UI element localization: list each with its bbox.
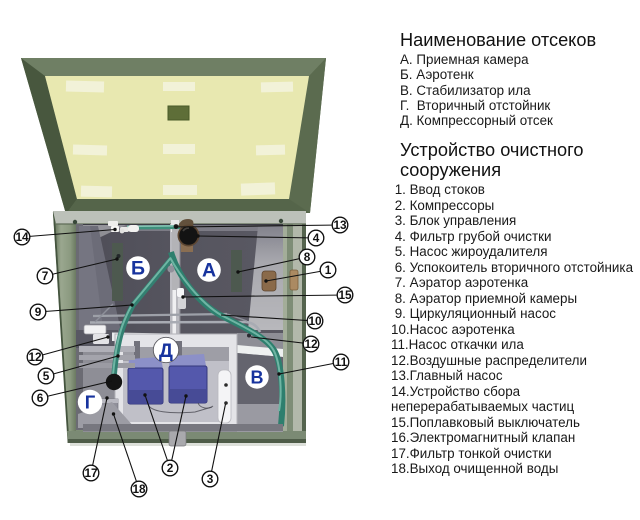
- svg-text:7: 7: [42, 269, 49, 283]
- svg-text:Д: Д: [159, 340, 173, 362]
- svg-text:9: 9: [35, 305, 42, 319]
- svg-text:14: 14: [15, 230, 29, 244]
- svg-text:8: 8: [304, 250, 311, 264]
- svg-text:4: 4: [313, 231, 320, 245]
- svg-text:1: 1: [325, 263, 332, 277]
- svg-text:А: А: [202, 260, 216, 282]
- svg-text:6: 6: [37, 391, 44, 405]
- svg-text:17: 17: [84, 466, 98, 480]
- svg-text:2: 2: [167, 461, 174, 475]
- svg-text:15: 15: [338, 288, 352, 302]
- svg-text:Г: Г: [85, 392, 96, 413]
- svg-text:3: 3: [207, 472, 214, 486]
- svg-text:13: 13: [333, 218, 347, 232]
- svg-text:18: 18: [132, 482, 146, 496]
- svg-text:5: 5: [43, 369, 50, 383]
- svg-text:Б: Б: [131, 258, 145, 280]
- svg-text:12: 12: [28, 350, 42, 364]
- svg-text:10: 10: [308, 314, 322, 328]
- svg-text:11: 11: [335, 355, 348, 369]
- svg-text:12: 12: [304, 337, 318, 351]
- svg-text:В: В: [251, 368, 264, 388]
